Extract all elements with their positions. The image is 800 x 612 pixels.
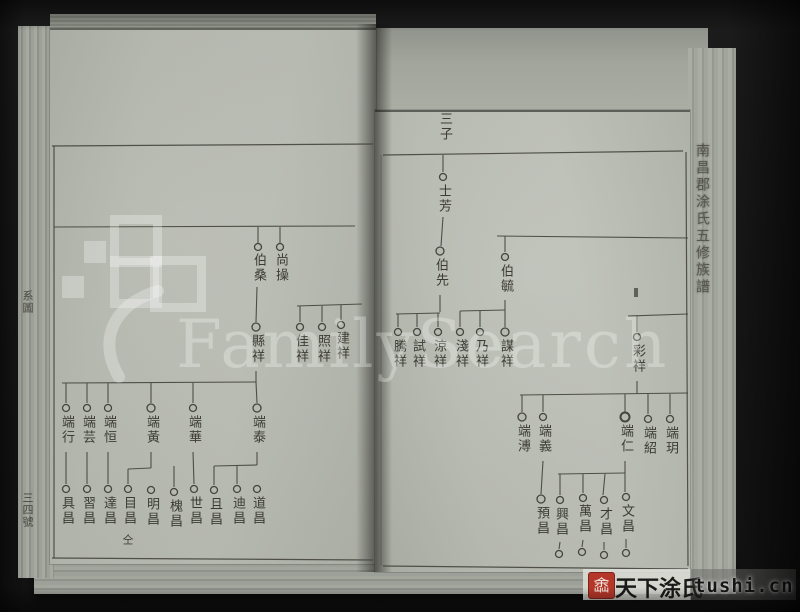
photographed-genealogy-book: 南昌郡涂氏五修族譜 系圖 三四號 [0, 0, 800, 612]
site-url-watermark: tushi.cn [694, 575, 794, 597]
site-name-watermark: 天下涂氏 [615, 571, 703, 603]
red-seal-icon: 嵞 [588, 572, 615, 599]
familysearch-watermark: FamilySearch [176, 306, 669, 383]
